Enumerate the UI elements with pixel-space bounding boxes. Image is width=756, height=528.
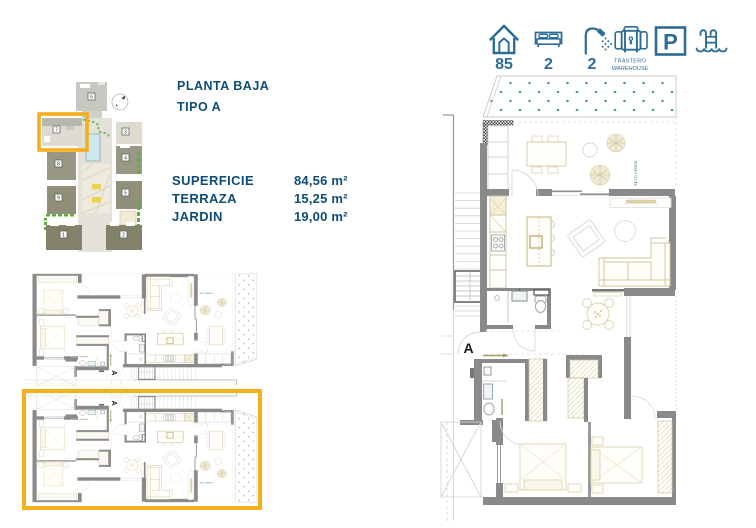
svg-text:6: 6	[90, 95, 93, 101]
svg-text:TRASTERO: TRASTERO	[614, 59, 647, 65]
svg-text:9: 9	[57, 196, 60, 202]
svg-text:A: A	[464, 340, 474, 356]
svg-text:1: 1	[62, 233, 65, 239]
svg-text:P: P	[663, 30, 678, 55]
svg-text:5: 5	[124, 191, 127, 197]
svg-text:2: 2	[122, 233, 125, 239]
svg-text:4: 4	[124, 156, 127, 162]
svg-text:SETO VERDE: SETO VERDE	[633, 160, 638, 186]
svg-text:7: 7	[55, 128, 58, 134]
svg-text:3: 3	[124, 130, 127, 136]
svg-text:8: 8	[57, 162, 60, 168]
